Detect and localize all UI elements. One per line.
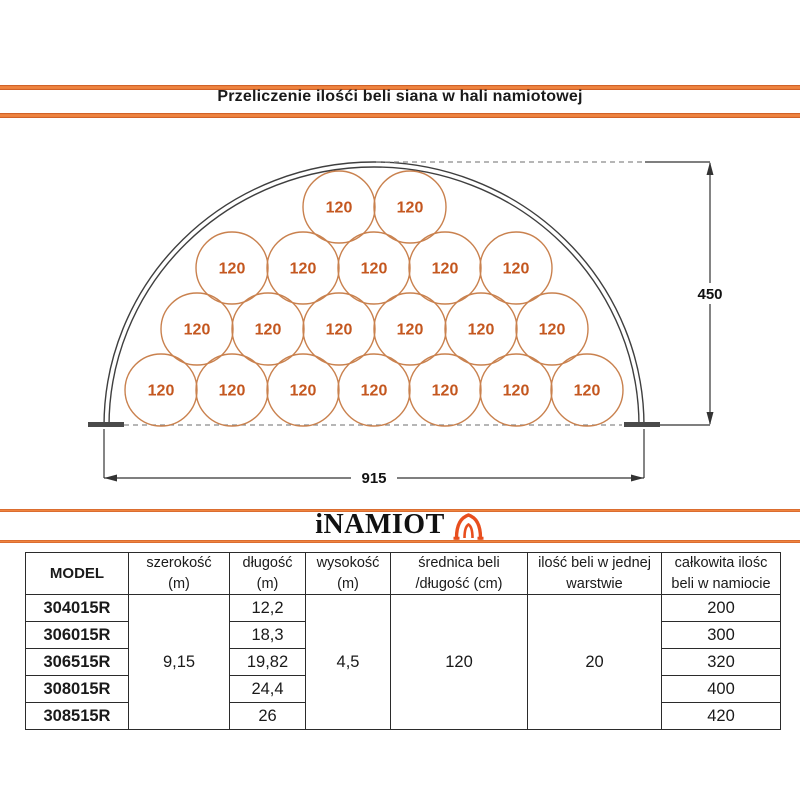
spec-table: MODELszerokość(m)długość(m)wysokość(m)śr… bbox=[25, 552, 781, 730]
value-cell: 18,3 bbox=[230, 622, 306, 649]
tent-foot-right bbox=[624, 422, 660, 427]
bale-count-label: 120 bbox=[219, 383, 246, 400]
logo-bottom-divider bbox=[0, 540, 800, 543]
value-cell: 320 bbox=[662, 649, 781, 676]
column-header: szerokość(m) bbox=[129, 553, 230, 595]
bale-count-label: 120 bbox=[148, 383, 175, 400]
bale-count-label: 120 bbox=[468, 322, 495, 339]
column-header: długość(m) bbox=[230, 553, 306, 595]
table-header-row: MODELszerokość(m)długość(m)wysokość(m)śr… bbox=[26, 553, 781, 595]
value-cell: 400 bbox=[662, 676, 781, 703]
bale-count-label: 120 bbox=[503, 261, 530, 278]
bale-count-label: 120 bbox=[290, 261, 317, 278]
page-root: Przeliczenie ilośći beli siana w hali na… bbox=[0, 0, 800, 800]
arrow-up-icon bbox=[707, 162, 714, 175]
column-header: wysokość(m) bbox=[306, 553, 391, 595]
bale-stack: 1201201201201201201201201201201201201201… bbox=[125, 171, 623, 426]
bale-count-label: 120 bbox=[574, 383, 601, 400]
bale-count-label: 120 bbox=[326, 200, 353, 217]
arrow-down-icon bbox=[707, 412, 714, 425]
value-cell: 26 bbox=[230, 703, 306, 730]
column-header: całkowita iloścbeli w namiocie bbox=[662, 553, 781, 595]
column-header: ilość beli w jednejwarstwie bbox=[528, 553, 662, 595]
value-cell: 12,2 bbox=[230, 595, 306, 622]
value-cell: 200 bbox=[662, 595, 781, 622]
column-header: średnica beli/długość (cm) bbox=[391, 553, 528, 595]
bale-count-label: 120 bbox=[255, 322, 282, 339]
value-cell: 19,82 bbox=[230, 649, 306, 676]
bale-count-label: 120 bbox=[361, 383, 388, 400]
bale-count-label: 120 bbox=[432, 383, 459, 400]
value-cell: 24,4 bbox=[230, 676, 306, 703]
width-dimension-label: 915 bbox=[361, 470, 386, 487]
value-cell: 300 bbox=[662, 622, 781, 649]
arrow-right-icon bbox=[631, 475, 644, 482]
model-cell: 306515R bbox=[26, 649, 129, 676]
bale-count-label: 120 bbox=[219, 261, 246, 278]
model-cell: 308515R bbox=[26, 703, 129, 730]
bale-count-label: 120 bbox=[539, 322, 566, 339]
brand-logo: iNAMIOT bbox=[0, 511, 800, 539]
height-dimension-label: 450 bbox=[697, 286, 722, 303]
column-header: MODEL bbox=[26, 553, 129, 595]
table-row: 304015R9,1512,24,512020200 bbox=[26, 595, 781, 622]
bale-count-label: 120 bbox=[397, 200, 424, 217]
arrow-left-icon bbox=[104, 475, 117, 482]
model-cell: 304015R bbox=[26, 595, 129, 622]
value-cell: 120 bbox=[391, 595, 528, 730]
tent-foot-left bbox=[88, 422, 124, 427]
value-cell: 4,5 bbox=[306, 595, 391, 730]
bale-count-label: 120 bbox=[184, 322, 211, 339]
value-cell: 9,15 bbox=[129, 595, 230, 730]
bale-count-label: 120 bbox=[397, 322, 424, 339]
model-cell: 308015R bbox=[26, 676, 129, 703]
bale-count-label: 120 bbox=[503, 383, 530, 400]
value-cell: 20 bbox=[528, 595, 662, 730]
tent-icon bbox=[452, 511, 485, 540]
bale-count-label: 120 bbox=[361, 261, 388, 278]
model-cell: 306015R bbox=[26, 622, 129, 649]
logo-text: iNAMIOT bbox=[315, 511, 445, 539]
tent-cross-section-diagram: 450 915 12012012012012012012012012012012… bbox=[0, 0, 800, 545]
bale-count-label: 120 bbox=[432, 261, 459, 278]
value-cell: 420 bbox=[662, 703, 781, 730]
bale-count-label: 120 bbox=[326, 322, 353, 339]
bale-count-label: 120 bbox=[290, 383, 317, 400]
